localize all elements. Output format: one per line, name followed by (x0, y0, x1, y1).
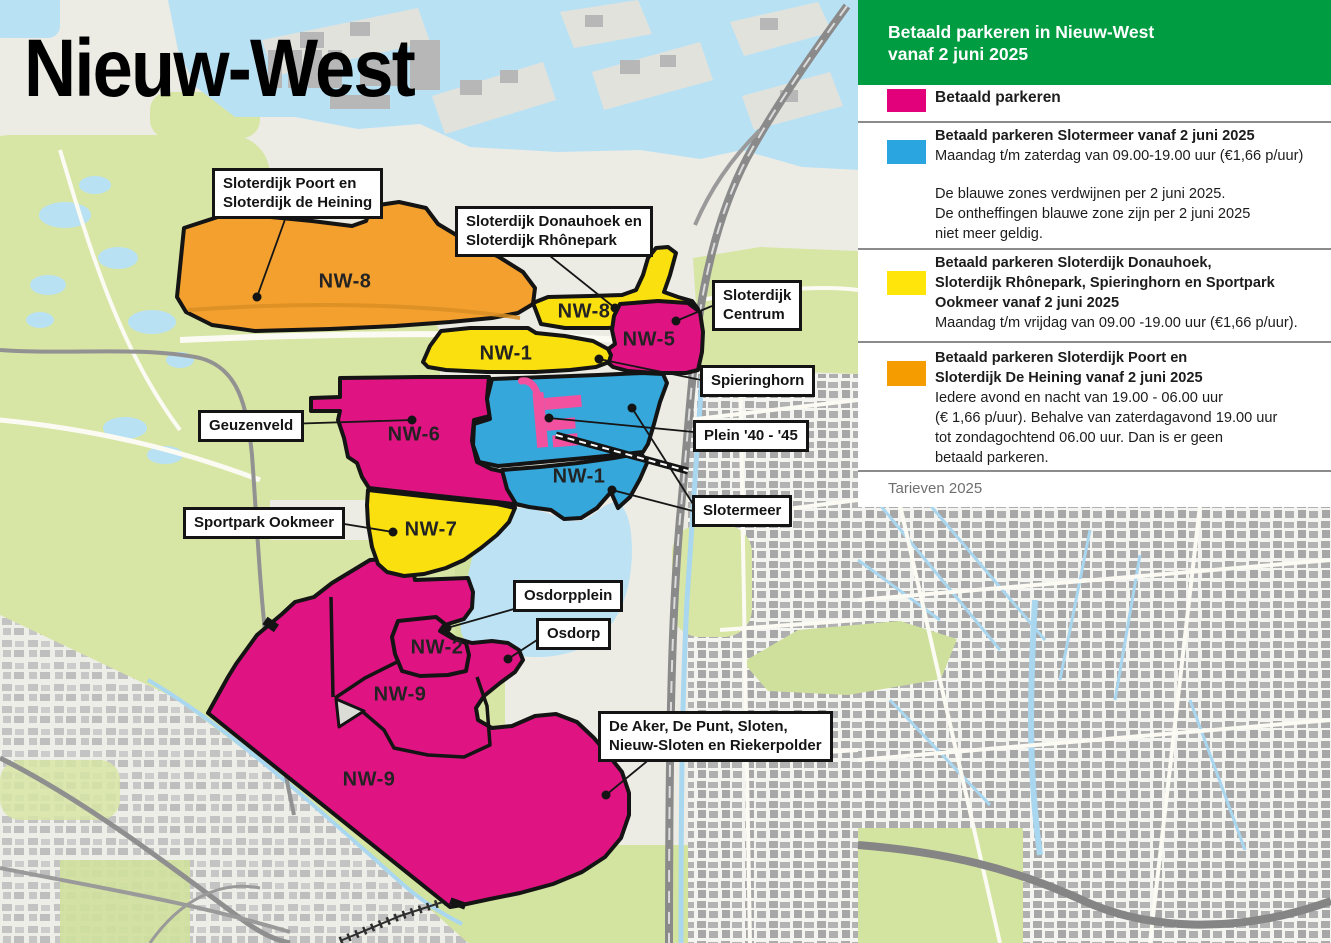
zone-label-nw6: NW-6 (388, 424, 441, 447)
callout-slotermeer: Slotermeer (692, 495, 792, 527)
callout-geuzenveld: Geuzenveld (198, 410, 304, 442)
legend-divider (858, 470, 1331, 472)
zone-label-nw2: NW-2 (411, 637, 464, 660)
callout-de-aker: De Aker, De Punt, Sloten, Nieuw-Sloten e… (598, 711, 833, 762)
legend-header: Betaald parkeren in Nieuw-West vanaf 2 j… (858, 0, 1331, 85)
zone-label-nw8-orange: NW-8 (319, 271, 372, 294)
zone-label-nw9-south: NW-9 (343, 769, 396, 792)
legend-item-pink-title: Betaald parkeren (935, 88, 1323, 108)
legend-swatch-yellow (887, 271, 926, 295)
zone-label-nw1-blue: NW-1 (553, 466, 606, 489)
legend-item-blue-title: Betaald parkeren Slotermeer vanaf 2 juni… (935, 126, 1323, 146)
zone-label-nw7: NW-7 (405, 519, 458, 542)
callout-sportpark-ookmeer: Sportpark Ookmeer (183, 507, 345, 539)
legend-item-yellow-schedule: Maandag t/m vrijdag van 09.00 -19.00 uur… (935, 313, 1323, 333)
zone-label-nw1-yellow: NW-1 (480, 343, 533, 366)
zone-label-nw8-yellow: NW-8 (558, 301, 611, 324)
zone-label-nw9-north: NW-9 (374, 684, 427, 707)
callout-sloterdijk-donauhoek: Sloterdijk Donauhoek en Sloterdijk Rhône… (455, 206, 653, 257)
legend-swatch-pink (887, 89, 926, 112)
page-title: Nieuw-West (24, 22, 414, 116)
callout-plein-40-45: Plein '40 - '45 (693, 420, 809, 452)
callout-osdorp: Osdorp (536, 618, 611, 650)
legend-divider (858, 121, 1331, 123)
callout-sloterdijk-poort: Sloterdijk Poort en Sloterdijk de Heinin… (212, 168, 383, 219)
callout-spieringhorn: Spieringhorn (700, 365, 815, 397)
legend-footer-tarieven: Tarieven 2025 (888, 480, 982, 497)
legend-swatch-blue (887, 140, 926, 164)
zone-label-nw5: NW-5 (623, 329, 676, 352)
legend-item-orange-title: Betaald parkeren Sloterdijk Poort en Slo… (935, 348, 1323, 388)
legend-item-orange-schedule: Iedere avond en nacht van 19.00 - 06.00 … (935, 388, 1323, 468)
legend-swatch-orange (887, 361, 926, 386)
legend-item-blue-schedule: Maandag t/m zaterdag van 09.00-19.00 uur… (935, 146, 1323, 166)
callout-osdorpplein: Osdorpplein (513, 580, 623, 612)
legend-panel: Betaald parkeren in Nieuw-West vanaf 2 j… (858, 0, 1331, 507)
callout-sloterdijk-centrum: Sloterdijk Centrum (712, 280, 802, 331)
legend-divider (858, 248, 1331, 250)
parking-map-flyer: Nieuw-West NW-8 NW-8 NW-1 NW-5 NW-6 NW-1… (0, 0, 1331, 943)
legend-divider (858, 341, 1331, 343)
legend-item-blue-note: De blauwe zones verdwijnen per 2 juni 20… (935, 184, 1323, 244)
legend-item-yellow-title: Betaald parkeren Sloterdijk Donauhoek, S… (935, 253, 1323, 313)
